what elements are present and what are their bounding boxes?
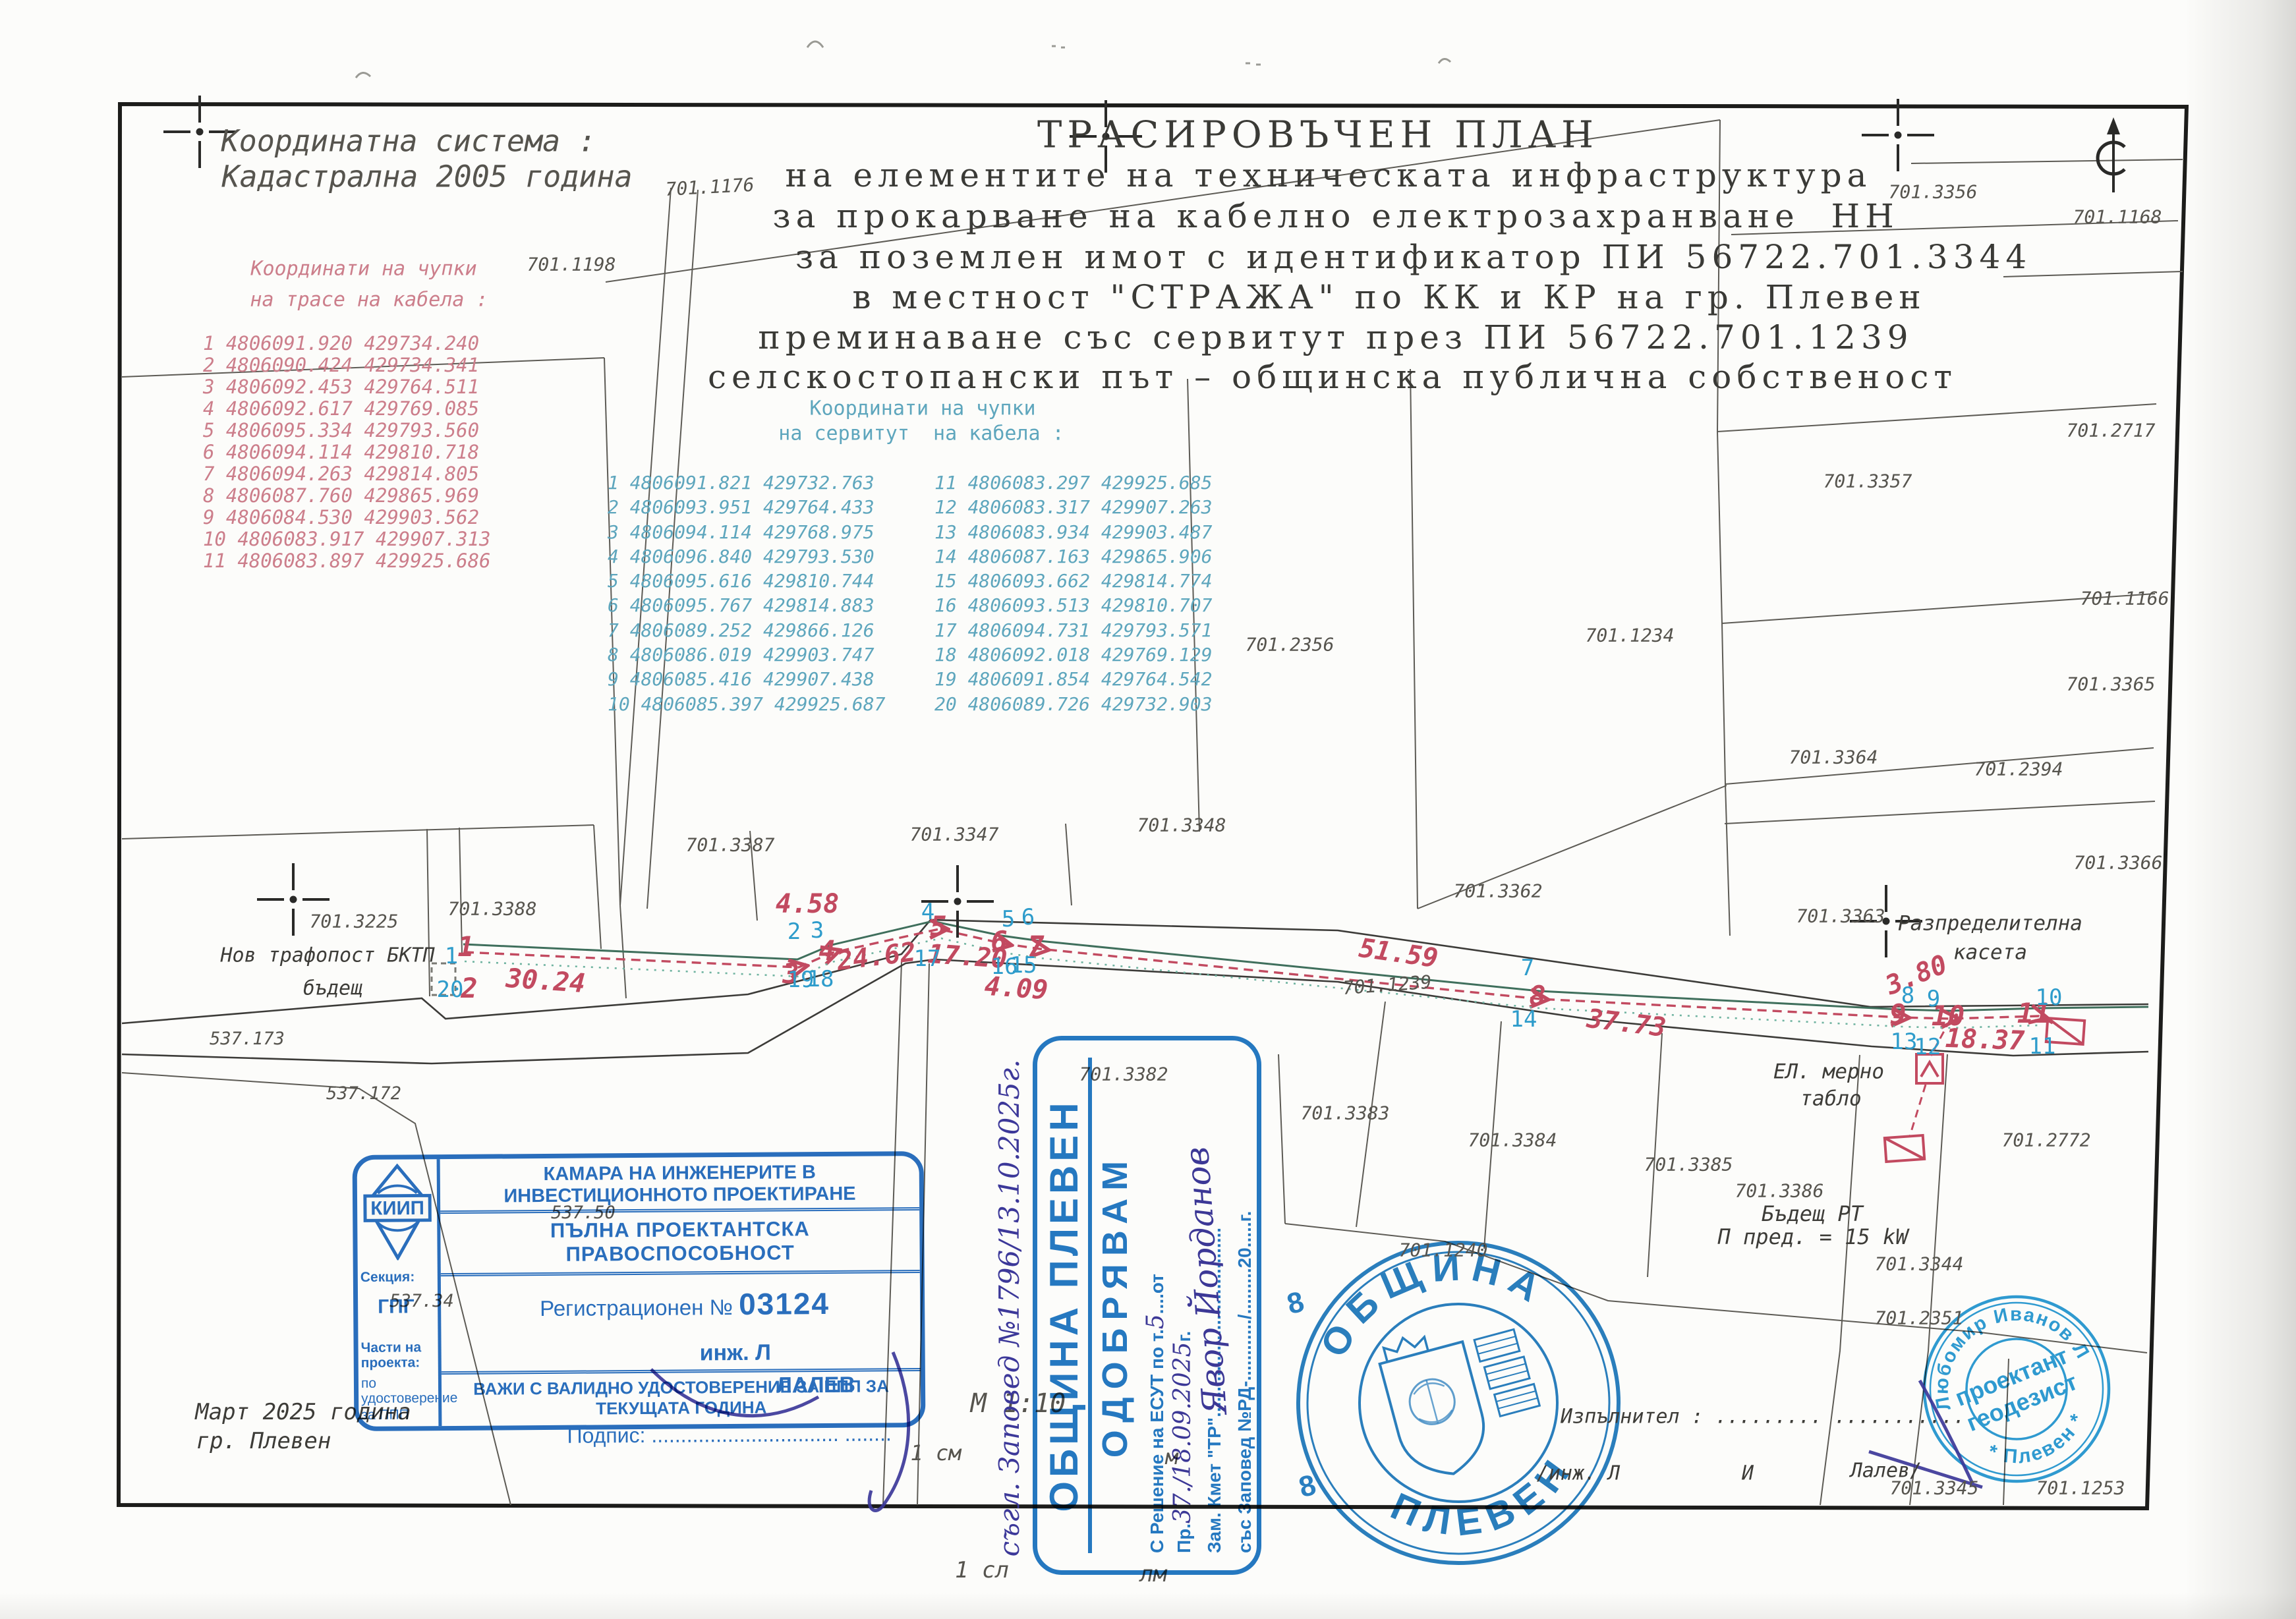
map-text: 701.3364 xyxy=(1789,747,1878,766)
map-text: Разпределителна xyxy=(1898,913,2082,935)
approval-order-line: със Заповед №РД-............/.........20… xyxy=(1234,1058,1255,1553)
trace-coord-row: 11 4806083.897 429925.686 xyxy=(203,550,491,572)
map-text: 701.3384 xyxy=(1468,1130,1557,1149)
servitude-coord-row: 19 4806091.854 429764.542 xyxy=(934,667,1212,691)
map-text: 701.2717 xyxy=(2067,420,2156,440)
trace-coord-row: 8 4806087.760 429865.969 xyxy=(203,485,491,507)
map-text: 7 xyxy=(1521,957,1534,980)
trace-coord-row: 10 4806083.917 429907.313 xyxy=(203,528,491,550)
trace-coord-row: 6 4806094.114 429810.718 xyxy=(203,441,491,463)
trace-coord-row: 7 4806094.263 429814.805 xyxy=(203,463,491,485)
servitude-coord-row: 14 4806087.163 429865.906 xyxy=(934,544,1212,569)
kiip-stamp-left-column: КИИП Секция: ГПГ Части на проекта: по уд… xyxy=(357,1159,442,1427)
kiip-signature-label: Подпис: ................................… xyxy=(567,1421,892,1448)
scan-edge-shadow xyxy=(2184,0,2296,1619)
map-text: 4.58 xyxy=(776,890,839,918)
servitude-coord-row: 3 4806094.114 429768.975 xyxy=(608,520,885,544)
coat-of-arms xyxy=(1375,1308,1551,1485)
servitude-coord-row: 1 4806091.821 429732.763 xyxy=(608,470,885,495)
servitude-coord-row: 16 4806093.513 429810.707 xyxy=(934,593,1212,617)
map-text: 701.3356 xyxy=(1889,182,1978,201)
map-text: табло xyxy=(1800,1089,1861,1110)
map-text: Нов трафопост БКТП xyxy=(220,945,434,966)
servitude-coord-row: 15 4806093.662 429814.774 xyxy=(934,569,1212,593)
trace-coord-row: 4 4806092.617 429769.085 xyxy=(203,398,491,420)
map-text: 701.3225 xyxy=(310,911,399,930)
kiip-section-label: Секция: xyxy=(360,1270,415,1286)
map-text: 701.2351 xyxy=(1875,1308,1964,1327)
kiip-engineer-name1: инж. Л xyxy=(700,1340,772,1367)
servitude-coord-row: 7 4806089.252 429866.126 xyxy=(608,618,885,642)
map-text: 701.1176 xyxy=(665,175,755,199)
kiip-logo-text: КИИП xyxy=(370,1197,424,1220)
map-text: 701.2394 xyxy=(1974,759,2063,778)
map-text: 2 xyxy=(788,921,801,944)
map-text: 701.3385 xyxy=(1644,1154,1733,1174)
municipal-round-stamp: ОБЩИНА ПЛЕВЕН xyxy=(1262,1207,1654,1599)
approval-stamp: ОБЩИНА ПЛЕВЕН ОДОБРЯВАМ С Решение на ЕСУ… xyxy=(1033,1036,1261,1575)
servitude-coords-header1: Координати на чупки xyxy=(809,398,1035,419)
servitude-coord-row: 5 4806095.616 429810.744 xyxy=(608,569,885,593)
kiip-header: КАМАРА НА ИНЖЕНЕРИТЕ В ИНВЕСТИЦИОННОТО П… xyxy=(440,1156,920,1214)
map-text: 1 xyxy=(445,945,458,969)
map-text: 1 xyxy=(457,932,474,961)
kiip-parts-label: Части на проекта: xyxy=(361,1340,436,1371)
cable-trace-line xyxy=(465,929,2061,1028)
map-text: 701.1168 xyxy=(2073,207,2162,226)
coord-system-line1: Координатна система : xyxy=(221,125,596,156)
map-text: 701.3344 xyxy=(1875,1254,1964,1273)
servitude-coords-col2: 11 4806083.297 429925.68512 4806083.317 … xyxy=(934,470,1212,716)
approval-decision-handwritten2: 37./18.09.2025 xyxy=(1169,1342,1196,1523)
svg-text:ПЛЕВЕН: ПЛЕВЕН xyxy=(1376,1438,1594,1566)
trace-coord-row: 9 4806084.530 429903.562 xyxy=(203,507,491,528)
approval-org: ОБЩИНА ПЛЕВЕН xyxy=(1041,1058,1092,1553)
map-text: 701.3387 xyxy=(686,835,775,854)
kiip-section-value: ГПГ xyxy=(378,1295,415,1317)
scan-artifacts xyxy=(356,42,1450,78)
map-text: 17 xyxy=(914,948,941,971)
map-text: 701.2772 xyxy=(2002,1130,2091,1149)
map-text: 20 xyxy=(437,979,464,1002)
scanned-cadastral-plan: ОБЩИНА ПЛЕВЕН xyxy=(0,0,2296,1619)
approval-decision-printed1: С Решение на ЕСУТ по т. xyxy=(1147,1329,1167,1553)
map-text: 537.172 xyxy=(326,1085,401,1103)
kiip-reg-number: 03124 xyxy=(739,1286,830,1321)
trace-coords-header2: на трасе на кабела : xyxy=(250,289,488,310)
map-text: 701.3348 xyxy=(1137,815,1226,834)
trace-coord-row: 2 4806090.424 429734.341 xyxy=(203,355,491,376)
approval-title: ОДОБРЯВАМ xyxy=(1095,1058,1135,1553)
map-text: 12 xyxy=(1914,1036,1941,1060)
trace-coord-row: 1 4806091.920 429734.240 xyxy=(203,333,491,355)
title-line: за прокарване на кабелно електрозахранва… xyxy=(772,197,1899,235)
title-line: преминаване със сервитут през ПИ 56722.7… xyxy=(758,318,1913,356)
map-text: гр. Плевен xyxy=(196,1430,331,1454)
servitude-coord-row: 8 4806086.019 429903.747 xyxy=(608,642,885,667)
map-text: 11 xyxy=(2029,1035,2056,1059)
kiip-subheader: ПЪЛНА ПРОЕКТАНТСКА ПРАВОСПОСОБНОСТ xyxy=(440,1210,920,1276)
servitude-coord-row: 20 4806089.726 429732.903 xyxy=(934,692,1212,716)
title-line: ТРАСИРОВЪЧЕН ПЛАН xyxy=(1037,114,1599,157)
title-line: за поземлен имот с идентификатор ПИ 5672… xyxy=(795,238,2032,276)
map-text: 14 xyxy=(1510,1008,1537,1032)
servitude-coord-row: 4 4806096.840 429793.530 xyxy=(608,544,885,569)
map-text: 701.3388 xyxy=(448,899,537,918)
kiip-logo-icon: КИИП xyxy=(362,1163,432,1261)
map-text: 701.3357 xyxy=(1823,471,1912,490)
kiip-middle: Регистрационен № 03124 инж. Л ЛАЛЕВ Подп… xyxy=(441,1273,921,1371)
kiip-stamp: КИИП Секция: ГПГ Части на проекта: по уд… xyxy=(353,1151,926,1431)
north-compass-icon xyxy=(2098,117,2125,192)
servitude-coord-row: 12 4806083.317 429907.263 xyxy=(934,495,1212,519)
map-text: 701.3363 xyxy=(1796,906,1885,925)
map-text: 13 xyxy=(1891,1031,1918,1054)
map-text: съгл. Заповед №1796/13.10.2025г. xyxy=(995,1060,1024,1557)
trace-coord-row: 5 4806095.334 429793.560 xyxy=(203,420,491,441)
map-text: касета xyxy=(1953,942,2027,964)
map-text: 16 xyxy=(991,955,1018,979)
map-text: 19 xyxy=(788,969,815,992)
map-text: Лалев/ xyxy=(1851,1460,1922,1481)
trace-coords-header1: Координати на чупки xyxy=(250,258,476,279)
map-text: 537.173 xyxy=(210,1030,285,1048)
servitude-coord-row: 6 4806095.767 429814.883 xyxy=(608,593,885,617)
map-text: 10 xyxy=(2036,986,2063,1010)
title-line: на елементите на техническата инфраструк… xyxy=(786,156,1872,194)
servitude-coords-header2: на сервитут на кабела : xyxy=(778,423,1064,444)
map-text: 3 xyxy=(811,919,824,943)
map-text: /инж. Л xyxy=(1537,1463,1620,1484)
title-line: в местност "СТРАЖА" по КК и КР на гр. Пл… xyxy=(852,278,1926,316)
approval-mayor-line: Зам. Кмет "ТР"..........................… xyxy=(1204,1058,1225,1553)
map-text: 701.3347 xyxy=(910,824,999,843)
map-text: 1 см xyxy=(910,1442,961,1465)
map-text: 4 xyxy=(921,901,934,924)
stamp-city-bottom: ПЛЕВЕН xyxy=(1376,1438,1594,1566)
map-text: 701.3383 xyxy=(1301,1103,1390,1122)
servitude-coord-row: 9 4806085.416 429907.438 xyxy=(608,667,885,691)
coord-system-line2: Кадастрална 2005 година xyxy=(221,161,632,192)
servitude-coords-col1: 1 4806091.821 429732.7632 4806093.951 42… xyxy=(608,470,885,716)
title-line: селскостопански път – общинска публична … xyxy=(708,358,1957,396)
map-text: 701.1234 xyxy=(1586,625,1675,644)
kiip-reg-label: Регистрационен № xyxy=(540,1295,733,1321)
map-text: П пред. = 15 kW xyxy=(1718,1226,1909,1249)
map-text: ЕЛ. мерно xyxy=(1773,1062,1884,1083)
servitude-coord-row: 10 4806085.397 429925.687 xyxy=(608,692,885,716)
servitude-coord-row: 13 4806083.934 429903.487 xyxy=(934,520,1212,544)
map-text: бъдещ xyxy=(303,978,362,999)
servitude-coord-row: 17 4806094.731 429793.571 xyxy=(934,618,1212,642)
map-text: 9 xyxy=(1927,988,1940,1011)
map-text: 6 xyxy=(1021,906,1035,930)
scan-bottom-shadow xyxy=(0,1593,2296,1619)
map-text: 701.3386 xyxy=(1735,1181,1824,1200)
trace-coord-row: 3 4806092.453 429764.511 xyxy=(203,376,491,398)
servitude-coord-row: 2 4806093.951 429764.433 xyxy=(608,495,885,519)
servitude-coord-row: 11 4806083.297 429925.685 xyxy=(934,470,1212,495)
kiip-engineer-name2: ЛАЛЕВ xyxy=(776,1373,855,1399)
map-text: 701.1253 xyxy=(2036,1478,2125,1497)
map-text: 701.1166 xyxy=(2081,588,2169,608)
map-text: Изпълнител : ......... ........... xyxy=(1561,1406,1965,1427)
servitude-lower-line xyxy=(465,938,2039,1028)
kiip-parts-value2: за ППП xyxy=(361,1407,409,1423)
kiip-stamp-body: КАМАРА НА ИНЖЕНЕРИТЕ В ИНВЕСТИЦИОННОТО П… xyxy=(440,1156,921,1426)
trace-coords-list: 1 4806091.920 429734.2402 4806090.424 42… xyxy=(203,333,491,572)
approval-decision-handwritten1: 5 xyxy=(1142,1314,1169,1329)
map-text: Бъдещ РТ xyxy=(1762,1203,1863,1226)
map-text: 30.24 xyxy=(505,965,586,998)
servitude-coord-row: 18 4806092.018 429769.129 xyxy=(934,642,1212,667)
map-text: 701.1240 xyxy=(1399,1240,1488,1259)
map-text: 1 сл xyxy=(955,1559,1009,1583)
map-text: И xyxy=(1742,1463,1754,1484)
map-text: 701.3366 xyxy=(2074,853,2163,872)
map-text: 701.2356 xyxy=(1246,635,1335,654)
map-text: 5 xyxy=(1002,908,1015,932)
map-text: 8 xyxy=(1901,984,1914,1008)
map-text: 701.1198 xyxy=(527,254,616,273)
map-text: 701.3362 xyxy=(1454,881,1543,900)
map-text: 701.3365 xyxy=(2067,674,2156,693)
